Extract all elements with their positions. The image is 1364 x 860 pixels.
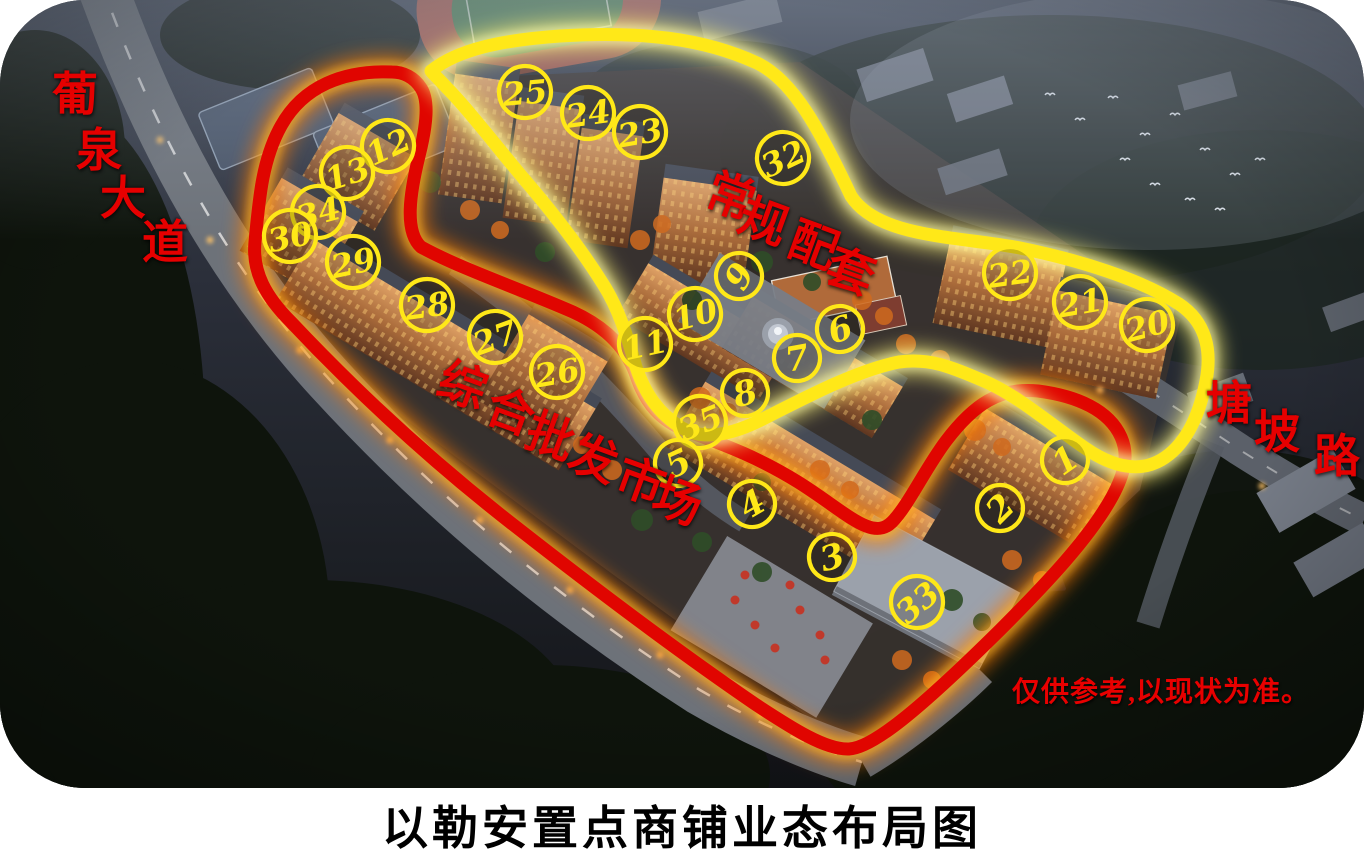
site-rendering-photo: 2524233212133430292827269101167835222120… (0, 0, 1364, 788)
svg-text:22: 22 (984, 252, 1034, 296)
road-label-char: 葡 (52, 72, 98, 118)
page-title: 以勒安置点商铺业态布局图 (372, 792, 992, 860)
svg-text:26: 26 (531, 350, 582, 395)
road-label-char: 泉 (76, 128, 122, 174)
svg-text:23: 23 (614, 110, 665, 155)
road-label-char: 大 (100, 176, 146, 222)
svg-text:28: 28 (401, 284, 451, 328)
road-label-char: 道 (142, 220, 188, 266)
svg-text:21: 21 (1054, 280, 1105, 325)
building-marker-25: 25 (497, 64, 553, 120)
road-label-char: 路 (1314, 434, 1360, 480)
road-label-char: 坡 (1254, 410, 1300, 456)
page: 2524233212133430292827269101167835222120… (0, 0, 1364, 860)
svg-text:25: 25 (500, 72, 549, 114)
svg-text:24: 24 (562, 92, 612, 136)
title-bar: 以勒安置点商铺业态布局图 (0, 792, 1364, 860)
disclaimer-note: 仅供参考,以现状为准。 (1012, 670, 1310, 710)
road-label-char: 塘 (1206, 381, 1252, 427)
